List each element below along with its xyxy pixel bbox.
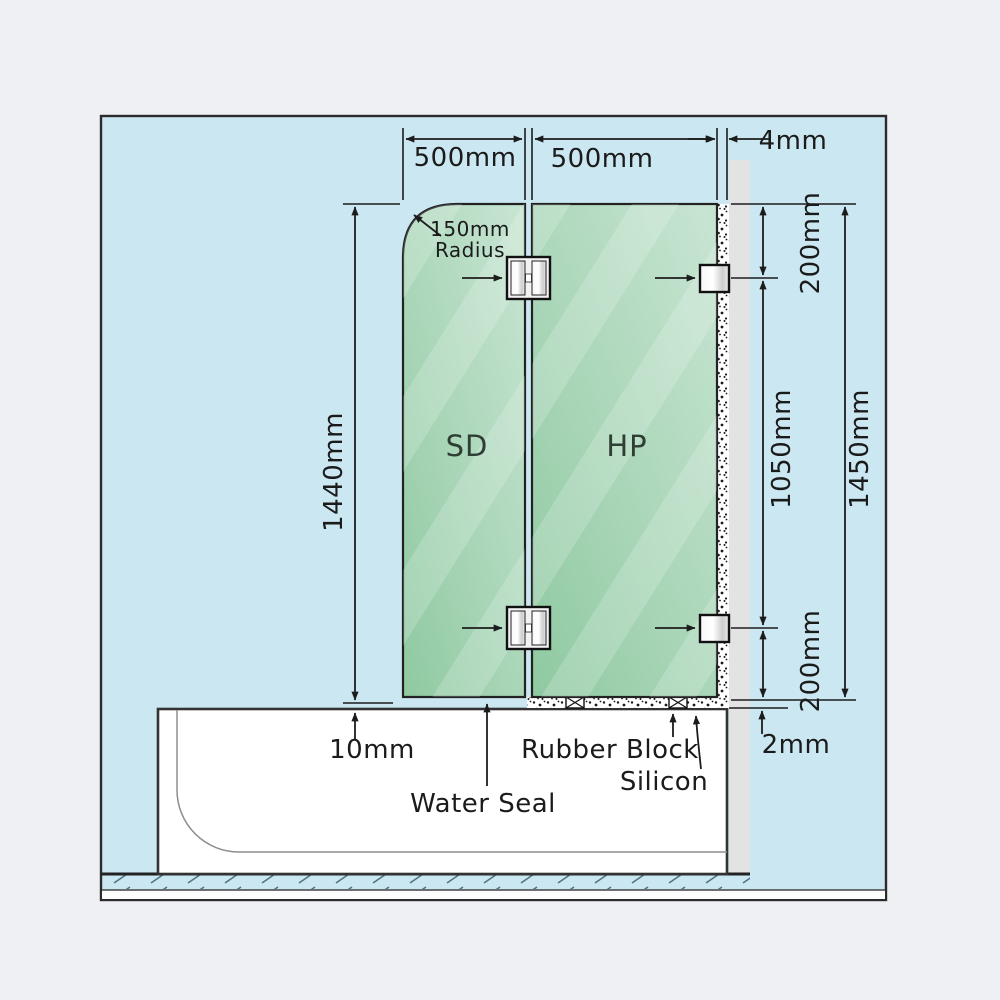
hp-panel-label: HP xyxy=(606,429,647,463)
rubber-block-left xyxy=(566,697,584,708)
silicon-strip-horizontal-speckle xyxy=(527,697,729,708)
rubber-block-right xyxy=(669,697,687,708)
top-hinge xyxy=(507,257,550,299)
bottom-hinge xyxy=(507,607,550,649)
top-wall-bracket xyxy=(700,265,729,292)
water-seal-label: Water Seal xyxy=(410,789,556,819)
tub-gap-label: 10mm xyxy=(329,735,415,765)
bottom-gap-label: 2mm xyxy=(762,730,831,760)
bracket-span-label: 1050mm xyxy=(767,389,797,509)
hp-width-label: 500mm xyxy=(551,144,654,174)
wall xyxy=(729,160,750,874)
floor-base-band xyxy=(102,890,885,899)
top-bracket-offset-label: 200mm xyxy=(796,192,826,295)
silicon-label: Silicon xyxy=(620,767,708,797)
wall-gap-label: 4mm xyxy=(759,126,828,156)
sd-panel-label: SD xyxy=(446,429,489,463)
shower-screen-dimension-diagram: SD HP 500mm 500mm 4mm 150mm xyxy=(0,0,1000,1000)
floor-hatch xyxy=(102,875,750,889)
corner-radius-label-line2: Radius xyxy=(435,238,505,262)
sd-width-label: 500mm xyxy=(414,143,517,173)
bottom-wall-bracket xyxy=(700,615,729,642)
bottom-bracket-offset-label: 200mm xyxy=(796,610,826,713)
total-height-label: 1450mm xyxy=(845,389,875,509)
sd-height-label: 1440mm xyxy=(319,412,349,532)
diagram-canvas: SD HP 500mm 500mm 4mm 150mm xyxy=(0,0,1000,1000)
rubber-block-label: Rubber Block xyxy=(521,735,699,765)
